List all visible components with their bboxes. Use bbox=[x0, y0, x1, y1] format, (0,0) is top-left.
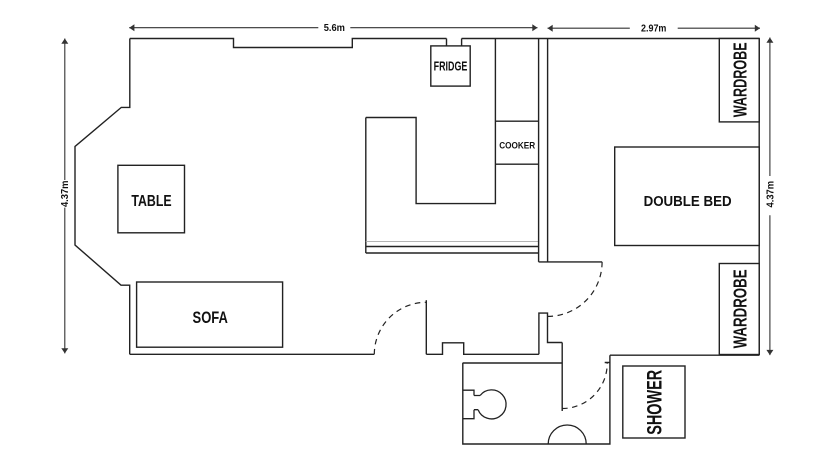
svg-text:2.97m: 2.97m bbox=[641, 24, 666, 35]
svg-text:FRIDGE: FRIDGE bbox=[434, 60, 468, 74]
svg-text:WARDROBE: WARDROBE bbox=[731, 269, 751, 348]
svg-text:COOKER: COOKER bbox=[499, 141, 535, 151]
svg-text:4.37m: 4.37m bbox=[60, 180, 71, 207]
svg-text:SOFA: SOFA bbox=[193, 308, 228, 327]
svg-text:SHOWER: SHOWER bbox=[644, 370, 667, 435]
svg-text:DOUBLE BED: DOUBLE BED bbox=[644, 193, 732, 210]
svg-text:5.6m: 5.6m bbox=[324, 23, 345, 34]
svg-text:WARDROBE: WARDROBE bbox=[731, 42, 751, 117]
svg-text:4.37m: 4.37m bbox=[765, 181, 776, 208]
svg-text:TABLE: TABLE bbox=[131, 193, 171, 210]
